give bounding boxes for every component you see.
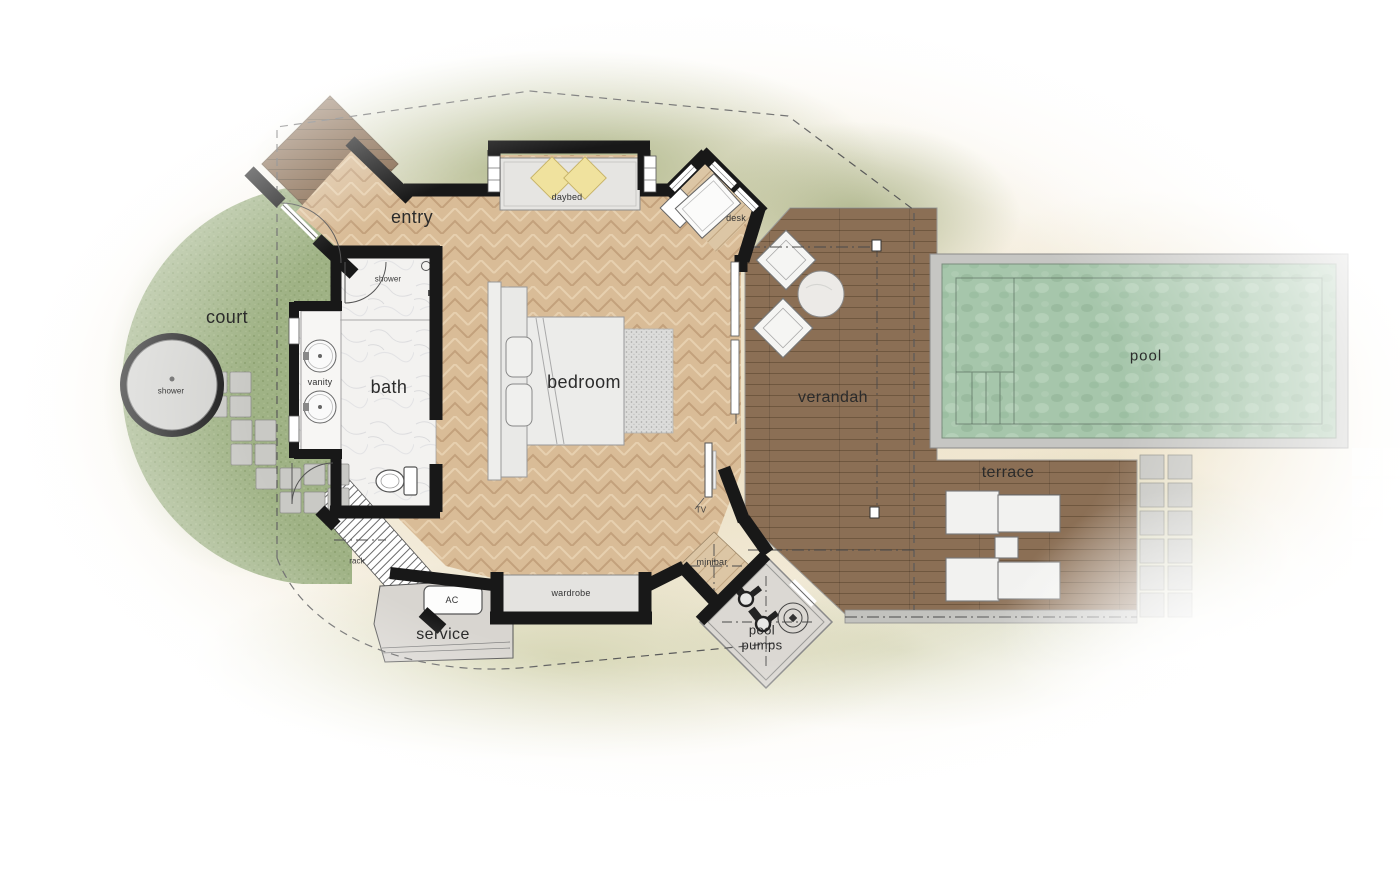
- toilet: [376, 467, 417, 495]
- deck-edge-band: [845, 610, 1137, 623]
- label-ac: AC: [446, 595, 459, 605]
- floorplan-svg: [0, 0, 1400, 895]
- sliding-door: [731, 262, 739, 336]
- label-service: service: [416, 626, 469, 644]
- round-table: [798, 271, 844, 317]
- label-wardrobe: wardrobe: [551, 588, 590, 598]
- label-verandah: verandah: [798, 389, 868, 407]
- label-tv: TV: [696, 507, 706, 516]
- ghost-tiles: [1352, 448, 1400, 569]
- lounger-side-table: [995, 537, 1018, 558]
- floor-plan-stage: entry court shower shower vanity bath be…: [0, 0, 1400, 895]
- bed-pillow: [506, 337, 532, 377]
- label-desk: desk: [726, 213, 746, 223]
- label-terrace: terrace: [982, 464, 1035, 482]
- sliding-door: [731, 340, 739, 414]
- label-daybed: daybed: [552, 192, 583, 202]
- label-minibar: minibar: [697, 557, 728, 567]
- label-bath-shower: shower: [375, 276, 401, 285]
- label-bath: bath: [371, 377, 408, 397]
- label-pool-pumps: pool pumps: [741, 623, 782, 652]
- label-bedroom: bedroom: [547, 372, 621, 392]
- label-rack: rack: [349, 558, 365, 567]
- bed-pillow: [506, 384, 532, 426]
- label-court: court: [206, 307, 248, 327]
- bedroom-rug: [621, 329, 673, 433]
- outdoor-shower: [120, 333, 224, 437]
- label-vanity: vanity: [308, 377, 333, 387]
- label-outdoor-shower: shower: [158, 388, 184, 397]
- label-pool: pool: [1130, 349, 1162, 366]
- label-entry: entry: [391, 207, 433, 227]
- terrace-stepping-stones: [1140, 455, 1192, 617]
